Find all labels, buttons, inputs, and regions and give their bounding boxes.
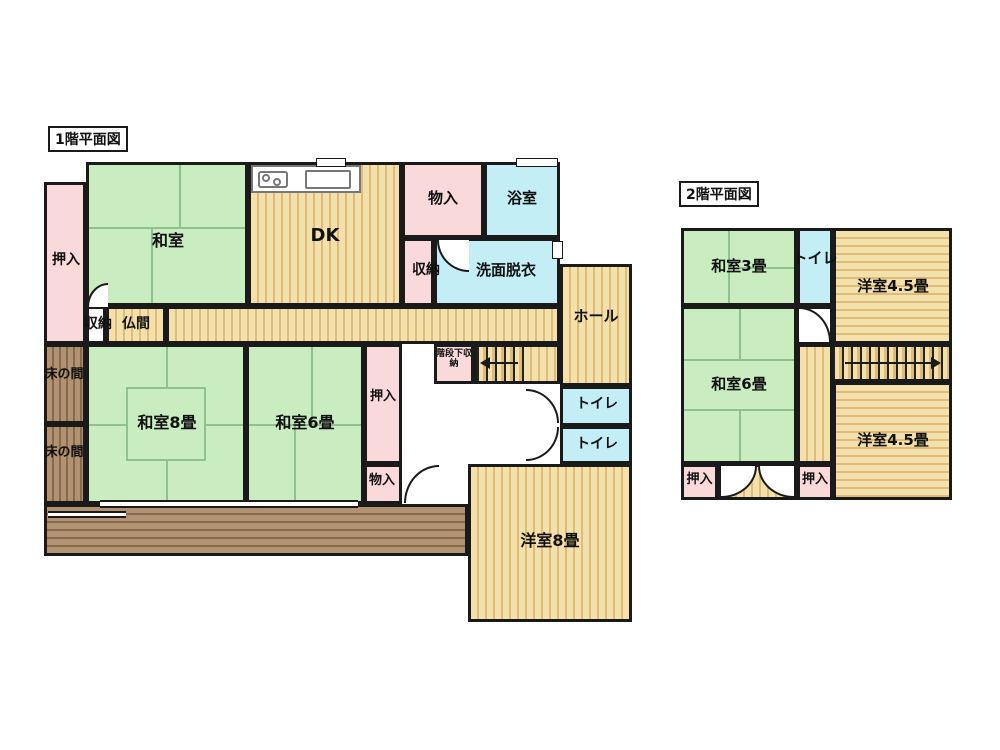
label-yoshitsu45-bottom: 洋室4.5畳 xyxy=(847,432,939,449)
label-dk: DK xyxy=(285,226,365,247)
label-oshiire-2f-right: 押入 xyxy=(797,473,833,488)
label-yokushitsu: 浴室 xyxy=(487,190,557,207)
stairs-2f-arrow xyxy=(845,362,931,364)
label-toilet-a: トイレ xyxy=(562,396,632,412)
room-tokonoma-a xyxy=(44,344,86,424)
label-washitsu6: 和室6畳 xyxy=(250,414,360,432)
label-yoshitsu8: 洋室8畳 xyxy=(495,532,605,550)
room-tokonoma-b xyxy=(44,424,86,504)
label-yoshitsu45-top: 洋室4.5畳 xyxy=(847,278,939,295)
label-kaidanshita: 階段下収納 xyxy=(436,349,472,370)
label-senmen: 洗面脱衣 xyxy=(450,262,562,279)
label-washitsu8: 和室8畳 xyxy=(112,414,222,432)
door-arc-veranda xyxy=(404,465,439,503)
label-monoire-mid: 物入 xyxy=(360,474,404,489)
stairs-1f-arrow xyxy=(488,362,518,364)
stove-icon xyxy=(258,171,288,188)
stairs-1f-arrowhead xyxy=(480,357,490,369)
corridor-1f xyxy=(166,306,560,344)
bath-window xyxy=(516,158,558,167)
label-washitsu: 和室 xyxy=(118,232,218,250)
door-arc-toilet-b xyxy=(526,427,559,461)
label-tokonoma-a: 床の間 xyxy=(34,368,94,383)
label-toilet-2f: トイレ xyxy=(785,250,845,267)
floor1-title: 1階平面図 xyxy=(48,126,128,152)
stairs-2f-arrowhead xyxy=(931,357,941,369)
label-oshiire-left: 押入 xyxy=(44,252,88,268)
label-oshiire-mid: 押入 xyxy=(364,390,402,405)
senmen-door-marker xyxy=(552,241,563,259)
label-shuno-top: 収納 xyxy=(396,262,456,278)
kitchen-sink-icon xyxy=(305,170,351,189)
label-butsuma: 仏間 xyxy=(110,316,162,332)
label-tokonoma-b: 床の間 xyxy=(34,446,94,461)
door-arc-toilet-a xyxy=(526,389,559,423)
label-washitsu3-2f: 和室3畳 xyxy=(698,258,780,275)
label-hall: ホール xyxy=(564,308,628,325)
label-monoire-top: 物入 xyxy=(408,190,478,207)
kitchen-window xyxy=(316,158,346,167)
label-oshiire-2f-left: 押入 xyxy=(681,473,718,488)
corridor-2f xyxy=(797,344,833,464)
floorplan-canvas: 1階平面図 xyxy=(0,0,1000,750)
sliding-window-veranda xyxy=(48,511,126,518)
sliding-door-marker-tatami xyxy=(100,500,358,508)
kitchen-counter xyxy=(251,165,361,193)
label-washitsu6-2f: 和室6畳 xyxy=(698,376,780,393)
stair-landing-1f xyxy=(524,344,560,384)
label-toilet-b: トイレ xyxy=(562,436,632,452)
floor2-title: 2階平面図 xyxy=(679,181,759,207)
